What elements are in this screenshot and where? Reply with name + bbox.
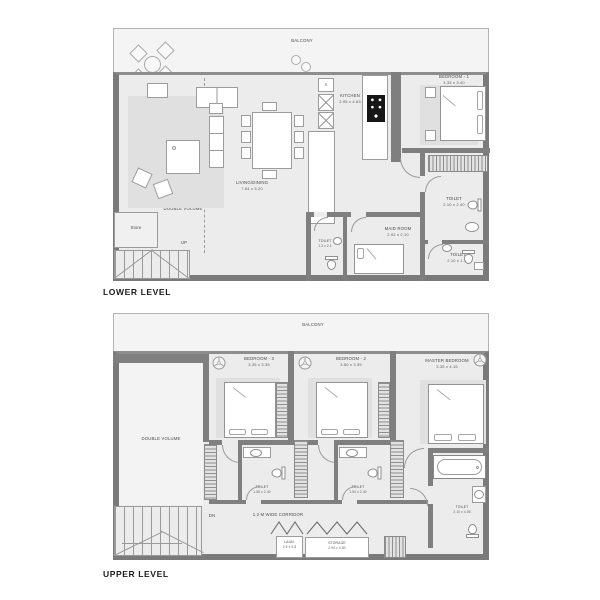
wall — [203, 354, 209, 442]
storage-label: STORAGE2.94 x 0.80 — [315, 541, 359, 550]
wall — [391, 72, 401, 162]
side-table-icon — [209, 103, 223, 114]
bedroom2-label: BEDROOM - 23.50 x 3.35 — [322, 356, 380, 368]
master-bedroom-label: MASTER BEDROOM3.35 x 4.15 — [414, 358, 480, 370]
dining-chair-icon — [294, 115, 304, 127]
wall — [390, 351, 396, 441]
pillow — [477, 91, 483, 110]
decor-dot — [172, 146, 176, 150]
pillow — [434, 434, 452, 441]
pillow — [458, 434, 476, 441]
door-opening — [318, 440, 334, 445]
stairs-lower — [114, 250, 190, 279]
upper-balcony-label: BALCONY — [283, 322, 343, 328]
duvet-fold — [233, 387, 246, 398]
duvet-fold — [443, 95, 456, 106]
patio-table-icon — [144, 56, 161, 73]
lower-level-title: LOWER LEVEL — [103, 287, 171, 297]
basin-icon — [333, 237, 342, 245]
living-dining-label: LIVING/DINING7.64 x 5.20 — [216, 180, 288, 192]
wall — [402, 148, 490, 153]
wall — [306, 217, 311, 281]
wardrobe-icon — [428, 155, 488, 172]
closet-icon — [294, 440, 308, 498]
corridor-label: 1.2 M WIDE CORRIDOR — [246, 512, 310, 518]
floorplan-canvas: BALCONY DOUBLE VOLUME LIV — [0, 0, 600, 600]
wall — [428, 448, 489, 453]
armchair-icon — [147, 83, 168, 98]
coffee-table-icon — [166, 140, 200, 174]
bathtub-drain — [476, 466, 479, 469]
door-opening — [246, 500, 261, 504]
door-opening — [314, 212, 327, 217]
tv-console-icon — [209, 116, 224, 168]
door-opening — [428, 486, 433, 504]
toilet3-label: TOILET1.55 x 2.40 — [246, 485, 278, 494]
dining-table-icon — [252, 112, 292, 169]
bed-icon — [316, 382, 368, 438]
wall — [113, 354, 209, 363]
kitchen-appliance-icon — [318, 112, 334, 129]
kitchen-label: KITCHEN2.95 x 4.63 — [328, 93, 372, 105]
dining-chair-icon — [241, 147, 251, 159]
dn-label: DN — [204, 513, 220, 519]
basin-icon — [250, 449, 262, 457]
wardrobe-icon — [378, 382, 390, 438]
basin-icon — [465, 222, 479, 232]
door-opening — [351, 212, 366, 217]
wall — [238, 445, 242, 501]
nightstand-icon — [425, 130, 436, 141]
dining-chair-icon — [241, 131, 251, 143]
dining-chair-icon — [294, 147, 304, 159]
ceiling-fan-icon — [298, 356, 312, 375]
bed-icon — [440, 86, 486, 141]
stair-direction-line — [122, 543, 182, 544]
door-opening — [420, 176, 425, 192]
double-volume-area — [119, 363, 203, 505]
bathtub-icon — [433, 455, 486, 479]
balcony-stool-icon — [301, 62, 311, 72]
maid-bed-icon — [354, 244, 404, 274]
wardrobe-icon — [276, 382, 288, 438]
maid-room-label: MAID ROOM2.92 x 2.10 — [376, 226, 420, 238]
store-label: Store — [118, 225, 154, 231]
pillow — [229, 429, 246, 435]
pillow — [357, 248, 364, 259]
upper-level-title: UPPER LEVEL — [103, 569, 169, 579]
dining-chair-icon — [241, 115, 251, 127]
upper-balcony — [113, 313, 489, 353]
bed-icon — [224, 382, 276, 438]
wall — [288, 351, 294, 441]
toilet-wc-icon — [325, 256, 338, 270]
pillow — [251, 429, 268, 435]
balcony-stool-icon — [291, 55, 301, 65]
kitchen-sink-icon: S — [318, 78, 334, 92]
bedroom1-label: BEDROOM - 13.35 x 3.40 — [424, 74, 484, 86]
duvet-fold — [437, 389, 451, 400]
upper-double-volume-label: DOUBLE VOLUME — [126, 436, 196, 442]
pillow — [477, 115, 483, 134]
master-toilet-label: TOILET2.10 x 4.05 — [444, 505, 480, 514]
pillow — [321, 429, 338, 435]
dining-chair-icon — [262, 170, 277, 179]
wall — [209, 500, 430, 504]
toilet-wc-icon — [468, 199, 482, 212]
door-opening — [428, 240, 442, 244]
duvet-fold — [367, 248, 377, 259]
basin-icon — [474, 490, 484, 499]
bed-icon — [428, 384, 484, 444]
toilet-wc-icon — [272, 467, 286, 480]
basin-icon — [442, 244, 452, 252]
ensuite-toilet-label: TOILET2.10 x 2.40 — [437, 196, 471, 208]
kitchen-island-icon — [308, 131, 335, 224]
toilet-wc-icon — [466, 524, 479, 538]
shower-icon — [474, 262, 484, 270]
door-opening — [342, 500, 357, 504]
up-label: UP — [176, 240, 192, 246]
nightstand-icon — [425, 87, 436, 98]
door-opening — [222, 440, 238, 445]
pillow — [343, 429, 360, 435]
closet-icon — [204, 444, 217, 500]
duvet-fold — [325, 387, 338, 398]
lower-balcony-label: BALCONY — [270, 38, 334, 44]
closet-icon — [384, 536, 406, 558]
laundry-label: LAUN.0.9 x 0.8 — [277, 540, 302, 549]
toilet2-label: TOILET1.54 x 2.40 — [342, 485, 374, 494]
dining-chair-icon — [262, 102, 277, 111]
basin-icon — [346, 449, 358, 457]
wall — [343, 217, 347, 281]
wall — [334, 445, 338, 501]
toilet-wc-icon — [368, 467, 382, 480]
dining-chair-icon — [294, 131, 304, 143]
closet-icon — [390, 440, 404, 498]
bedroom3-label: BEDROOM - 33.35 x 3.35 — [230, 356, 288, 368]
ceiling-fan-icon — [212, 356, 226, 375]
